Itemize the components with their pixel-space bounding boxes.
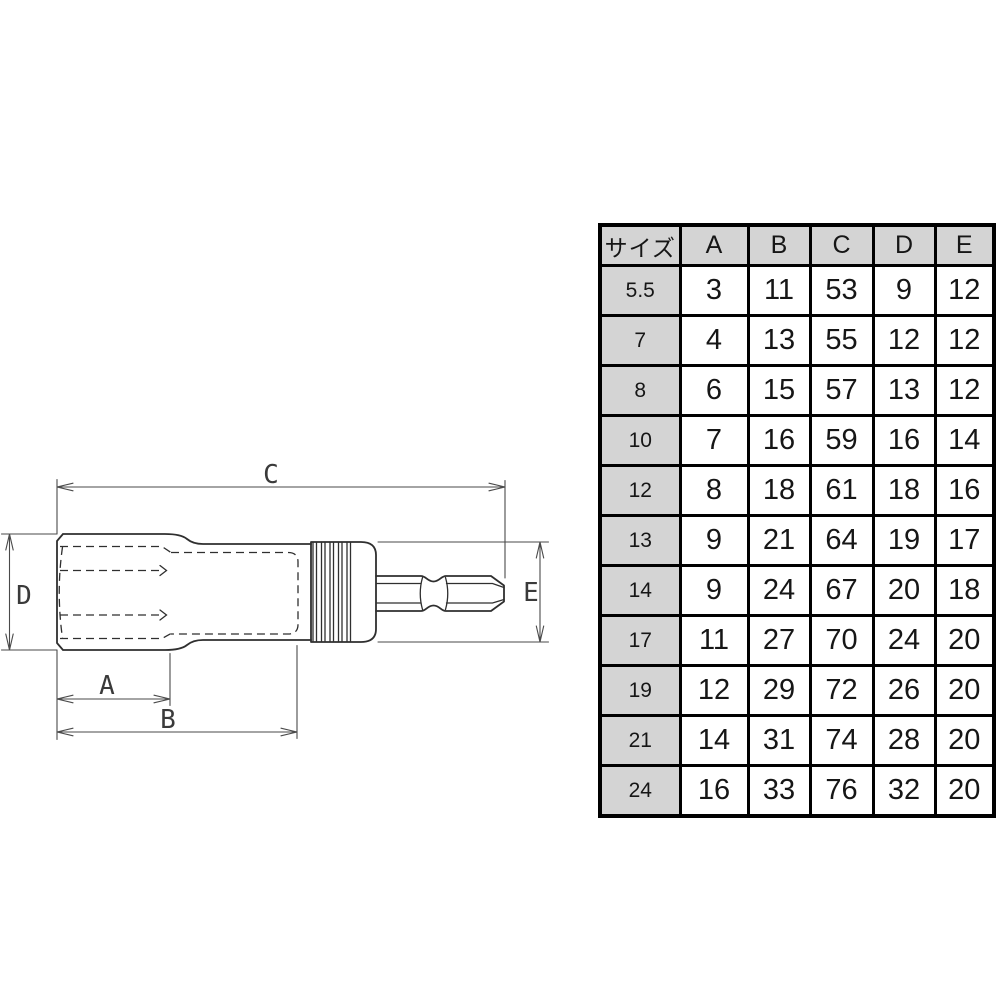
- value-cell: 16: [873, 416, 935, 466]
- value-cell: 12: [935, 266, 994, 316]
- value-cell: 33: [748, 766, 810, 817]
- table-row: 241633763220: [600, 766, 994, 817]
- size-spec-table: サイズ A B C D E 5.531153912741355121286155…: [598, 223, 996, 818]
- sleeve-collar-outline: [311, 542, 376, 642]
- value-cell: 20: [935, 666, 994, 716]
- dim-label-A: A: [99, 671, 115, 701]
- value-cell: 3: [680, 266, 748, 316]
- value-cell: 16: [680, 766, 748, 817]
- header-cell-B: B: [748, 225, 810, 266]
- value-cell: 72: [810, 666, 873, 716]
- size-cell: 5.5: [600, 266, 680, 316]
- value-cell: 18: [935, 566, 994, 616]
- hex-hole-corner-marks: [160, 566, 167, 621]
- value-cell: 20: [873, 566, 935, 616]
- dim-label-D: D: [16, 581, 32, 611]
- value-cell: 7: [680, 416, 748, 466]
- header-cell-size: サイズ: [600, 225, 680, 266]
- value-cell: 14: [680, 716, 748, 766]
- table-row: 7413551212: [600, 316, 994, 366]
- value-cell: 11: [748, 266, 810, 316]
- table-row: 12818611816: [600, 466, 994, 516]
- table-row: 10716591614: [600, 416, 994, 466]
- value-cell: 6: [680, 366, 748, 416]
- size-cell: 14: [600, 566, 680, 616]
- value-cell: 16: [935, 466, 994, 516]
- dim-label-C: C: [263, 460, 279, 490]
- value-cell: 28: [873, 716, 935, 766]
- value-cell: 26: [873, 666, 935, 716]
- sleeve-knurl-grooves: [313, 543, 351, 642]
- value-cell: 11: [680, 616, 748, 666]
- value-cell: 27: [748, 616, 810, 666]
- value-cell: 61: [810, 466, 873, 516]
- size-cell: 13: [600, 516, 680, 566]
- hex-shank-outline: [376, 576, 504, 611]
- hex-facet-lines: [377, 584, 504, 604]
- value-cell: 16: [748, 416, 810, 466]
- value-cell: 18: [748, 466, 810, 516]
- value-cell: 31: [748, 716, 810, 766]
- size-cell: 12: [600, 466, 680, 516]
- value-cell: 12: [873, 316, 935, 366]
- value-cell: 76: [810, 766, 873, 817]
- table-row: 211431742820: [600, 716, 994, 766]
- size-cell: 10: [600, 416, 680, 466]
- table-row: 13921641917: [600, 516, 994, 566]
- value-cell: 13: [748, 316, 810, 366]
- size-cell: 21: [600, 716, 680, 766]
- table-row: 5.531153912: [600, 266, 994, 316]
- value-cell: 9: [680, 516, 748, 566]
- size-cell: 17: [600, 616, 680, 666]
- size-table-body: 5.53115391274135512128615571312107165916…: [600, 266, 994, 817]
- socket-body-outline: [57, 534, 311, 650]
- internal-cavity-hidden-outline: [171, 553, 298, 635]
- value-cell: 24: [873, 616, 935, 666]
- header-cell-A: A: [680, 225, 748, 266]
- value-cell: 74: [810, 716, 873, 766]
- value-cell: 15: [748, 366, 810, 416]
- table-row: 8615571312: [600, 366, 994, 416]
- table-header-row: サイズ A B C D E: [600, 225, 994, 266]
- hex-hole-hidden-lines: [60, 547, 171, 639]
- header-cell-C: C: [810, 225, 873, 266]
- table-row: 14924672018: [600, 566, 994, 616]
- size-cell: 19: [600, 666, 680, 716]
- dim-C-line: [57, 480, 505, 579]
- value-cell: 70: [810, 616, 873, 666]
- value-cell: 29: [748, 666, 810, 716]
- header-cell-D: D: [873, 225, 935, 266]
- value-cell: 57: [810, 366, 873, 416]
- value-cell: 64: [810, 516, 873, 566]
- value-cell: 4: [680, 316, 748, 366]
- value-cell: 12: [935, 316, 994, 366]
- value-cell: 9: [873, 266, 935, 316]
- value-cell: 20: [935, 616, 994, 666]
- dim-label-B: B: [160, 705, 176, 735]
- size-cell: 8: [600, 366, 680, 416]
- value-cell: 53: [810, 266, 873, 316]
- value-cell: 18: [873, 466, 935, 516]
- table-row: 171127702420: [600, 616, 994, 666]
- value-cell: 59: [810, 416, 873, 466]
- product-spec-image: C D E A B サイズ A B C D E 5.53115391274135…: [0, 0, 1000, 1000]
- value-cell: 20: [935, 766, 994, 817]
- header-cell-E: E: [935, 225, 994, 266]
- value-cell: 20: [935, 716, 994, 766]
- dim-B-line: [57, 646, 297, 739]
- value-cell: 13: [873, 366, 935, 416]
- value-cell: 12: [680, 666, 748, 716]
- value-cell: 67: [810, 566, 873, 616]
- value-cell: 24: [748, 566, 810, 616]
- size-cell: 7: [600, 316, 680, 366]
- value-cell: 21: [748, 516, 810, 566]
- table-row: 191229722620: [600, 666, 994, 716]
- dim-label-E: E: [523, 578, 539, 608]
- value-cell: 17: [935, 516, 994, 566]
- value-cell: 55: [810, 316, 873, 366]
- value-cell: 14: [935, 416, 994, 466]
- size-cell: 24: [600, 766, 680, 817]
- value-cell: 19: [873, 516, 935, 566]
- socket-mouth-hidden-arc: [59, 547, 62, 638]
- value-cell: 32: [873, 766, 935, 817]
- value-cell: 9: [680, 566, 748, 616]
- value-cell: 8: [680, 466, 748, 516]
- value-cell: 12: [935, 366, 994, 416]
